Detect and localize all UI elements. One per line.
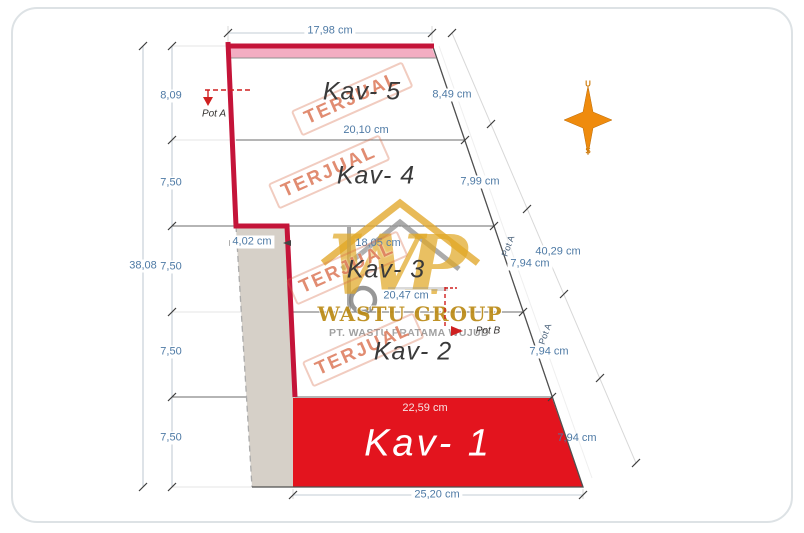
cut-strip xyxy=(236,228,295,487)
compass-south-label: S xyxy=(585,147,590,156)
dim-left-seg-5: 7,50 xyxy=(157,432,184,445)
dim-left-seg-1: 8,09 xyxy=(157,90,184,103)
compass-north-label: U xyxy=(585,80,591,89)
dim-right-seg-3: 7,94 cm xyxy=(507,258,552,271)
plot-label-kav2: Kav- 2 xyxy=(374,338,452,367)
plot-label-kav5: Kav- 5 xyxy=(323,78,401,107)
pot-b-label: Pot B xyxy=(476,326,500,337)
dim-right-seg-4: 7,94 cm xyxy=(526,346,571,359)
dim-cut-strip: 4,02 cm xyxy=(229,236,274,249)
dim-left-total: 38,08 xyxy=(126,260,160,273)
dim-left-seg-3: 7,50 xyxy=(157,261,184,274)
dim-right-seg-5: 7,94 cm xyxy=(557,432,596,444)
dim-bottom-width: 25,20 cm xyxy=(411,489,462,502)
compass-star xyxy=(564,86,612,155)
plot-label-kav3: Kav- 3 xyxy=(347,256,425,285)
dim-left-seg-4: 7,50 xyxy=(157,346,184,359)
pot-a-label: Pot A xyxy=(202,109,226,120)
plot-label-kav1: Kav- 1 xyxy=(364,423,492,466)
plot-label-kav4: Kav- 4 xyxy=(337,162,415,191)
dim-width-kav5: 20,10 cm xyxy=(343,124,388,136)
dim-right-seg-1: 8,49 cm xyxy=(429,89,474,102)
dim-right-total: 40,29 cm xyxy=(532,246,583,259)
site-plan-canvas: WP WASTU GROUP PT. WASTU PRATAMA WUJUD 1… xyxy=(0,0,804,533)
dim-left-seg-2: 7,50 xyxy=(157,177,184,190)
dim-width-kav2: 20,47 cm xyxy=(380,290,431,303)
frontage-strip xyxy=(228,48,436,58)
dim-top-width: 17,98 cm xyxy=(304,25,355,38)
dim-right-seg-2: 7,99 cm xyxy=(457,176,502,189)
dim-width-kav1: 22,59 cm xyxy=(402,402,447,414)
